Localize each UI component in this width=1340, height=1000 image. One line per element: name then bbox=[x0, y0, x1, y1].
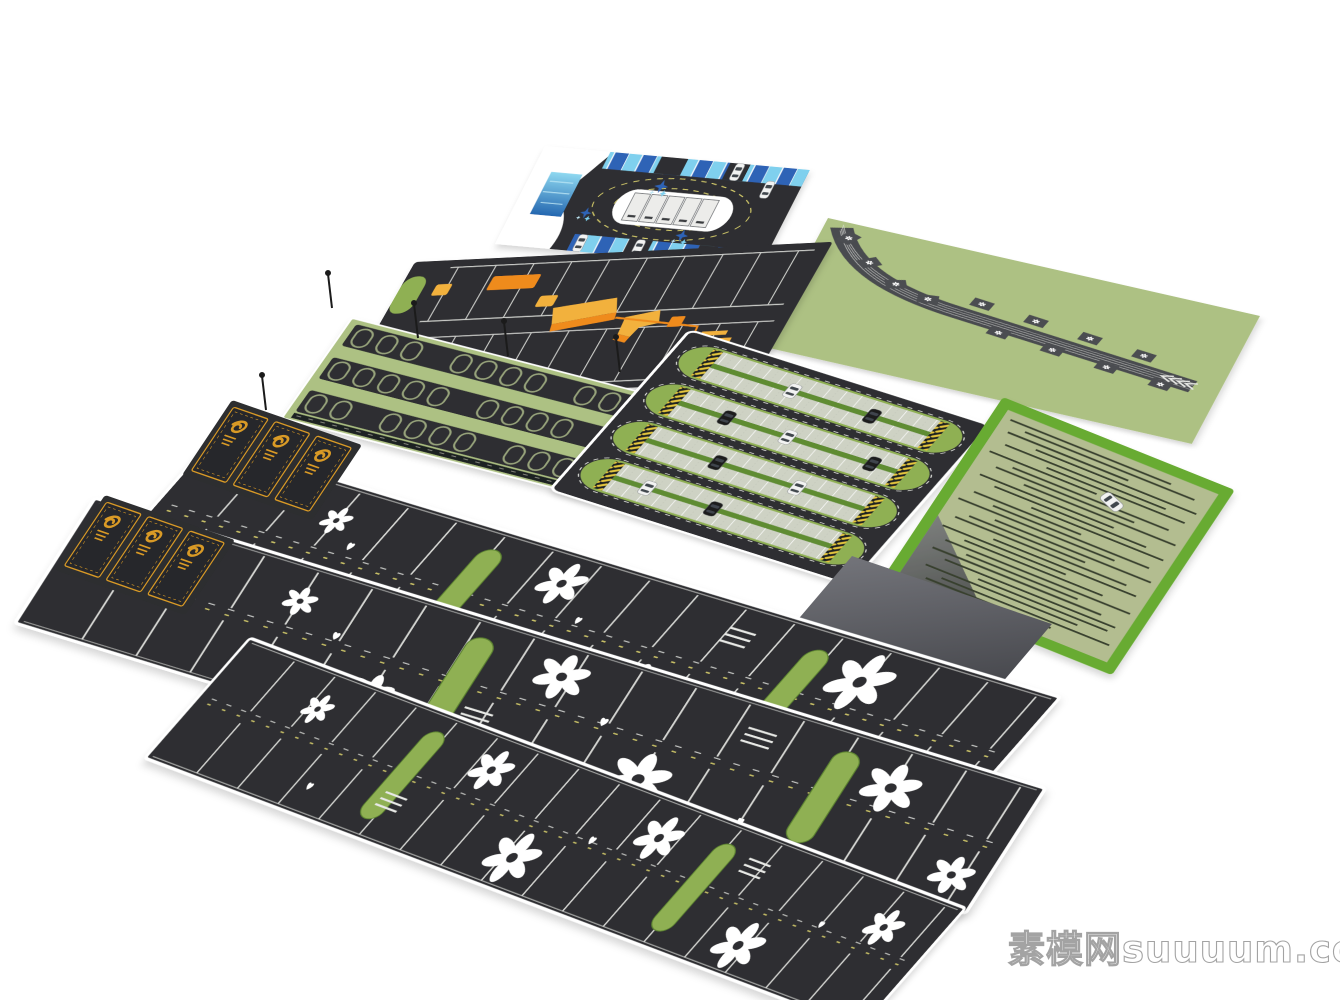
parking-model-render: 素模网suuuum.com bbox=[0, 0, 1340, 1000]
site-plan-canvas: 素模网suuuum.com bbox=[0, 0, 1340, 1000]
watermark-text: 素模网suuuum.com bbox=[1008, 928, 1340, 971]
